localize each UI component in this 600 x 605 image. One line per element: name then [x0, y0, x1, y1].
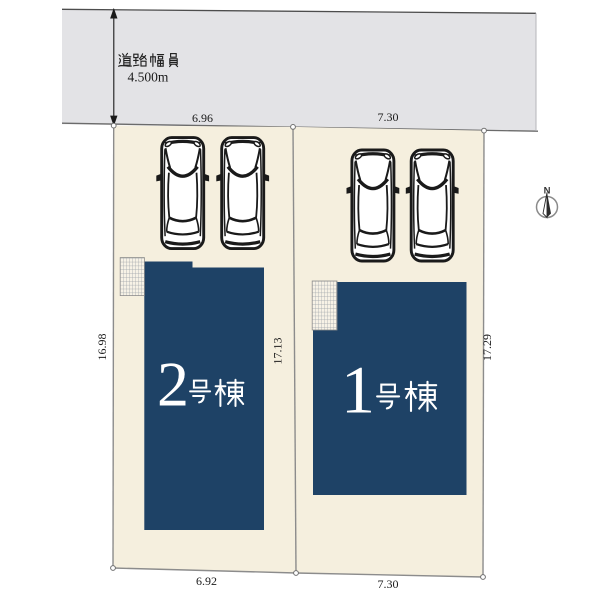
svg-text:7.30: 7.30	[378, 577, 399, 591]
svg-text:16.98: 16.98	[95, 334, 109, 361]
svg-text:6.96: 6.96	[192, 111, 213, 125]
svg-text:7.30: 7.30	[378, 110, 399, 124]
svg-text:6.92: 6.92	[196, 574, 217, 588]
svg-text:N: N	[544, 186, 551, 197]
svg-text:17.29: 17.29	[480, 334, 494, 361]
svg-text:4.500m: 4.500m	[128, 70, 169, 85]
svg-text:2: 2	[157, 349, 189, 420]
svg-text:1: 1	[341, 352, 375, 428]
svg-text:17.13: 17.13	[271, 338, 285, 365]
